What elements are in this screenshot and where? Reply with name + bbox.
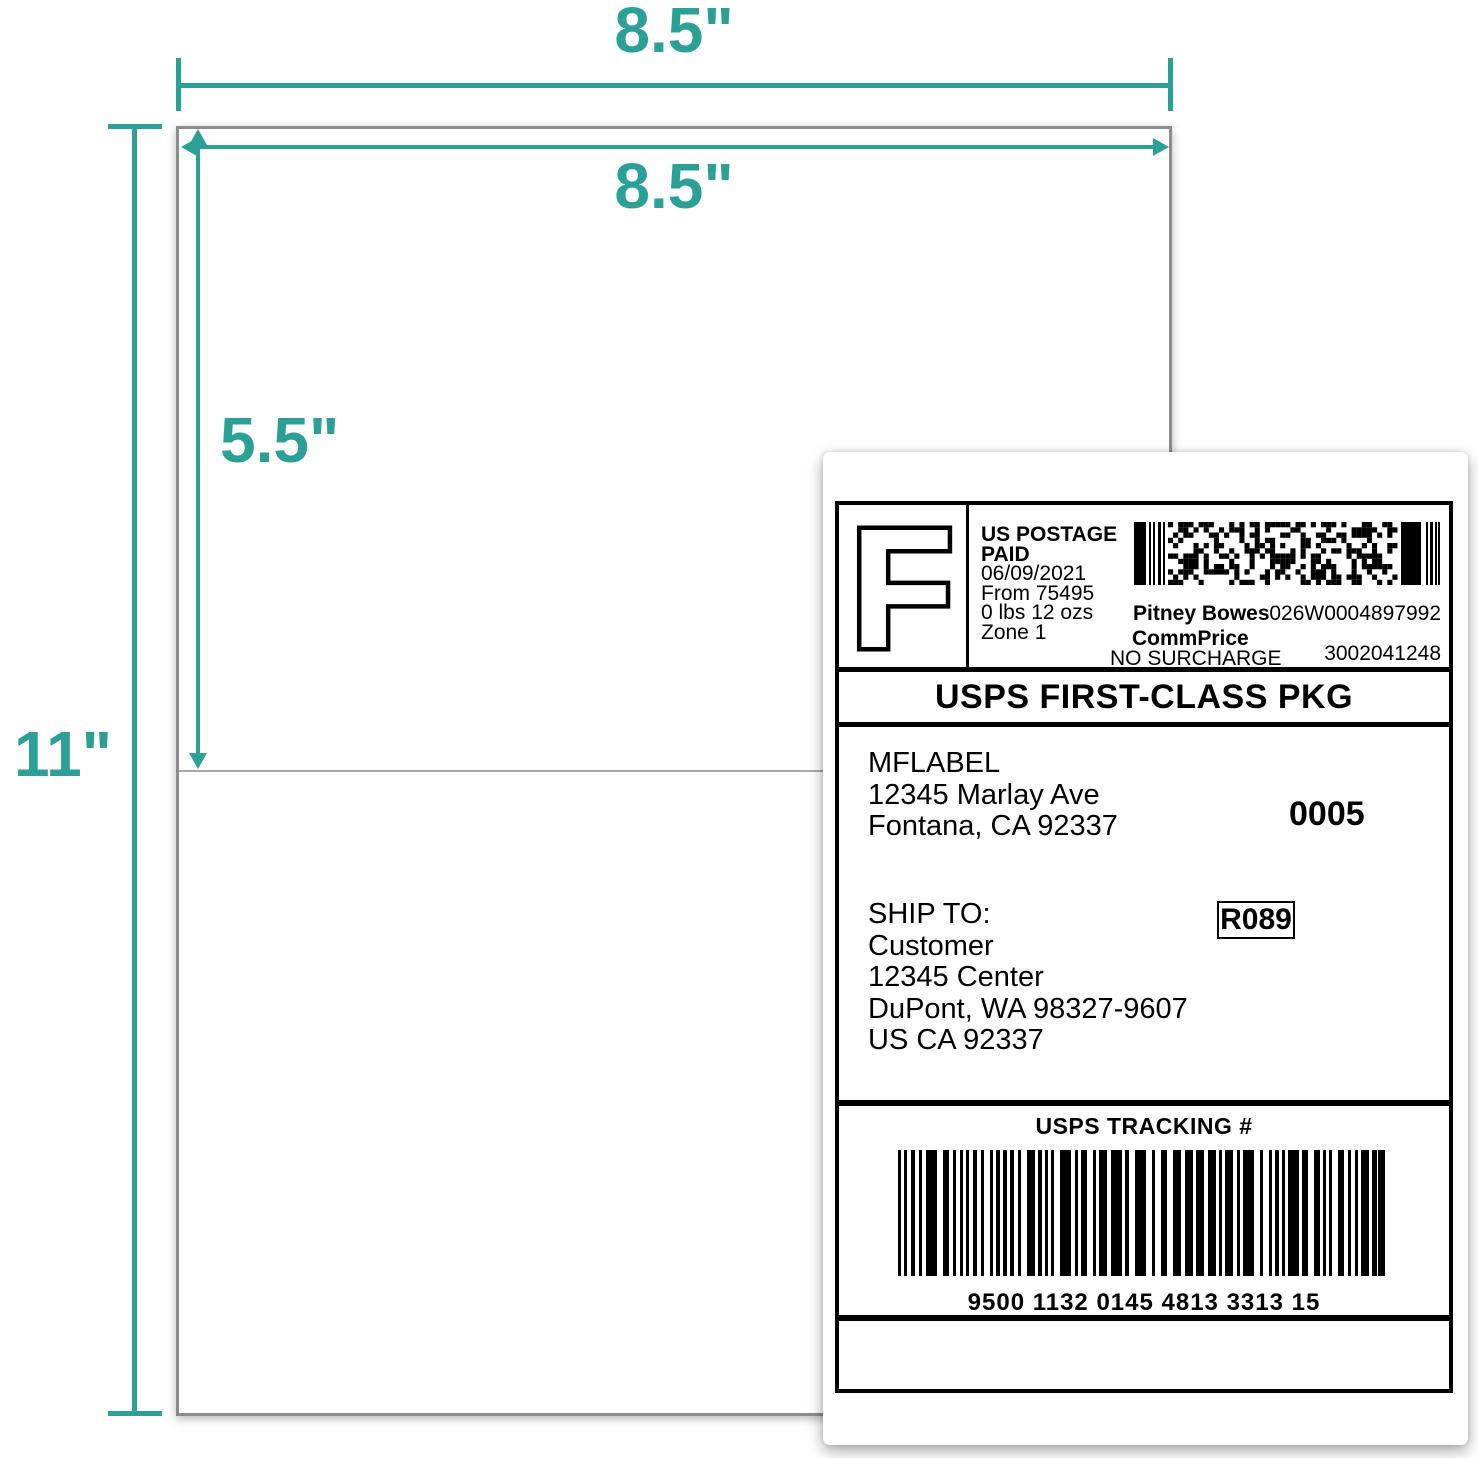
dimension-full-height-line xyxy=(132,126,137,1416)
postage-line: 06/09/2021 xyxy=(981,564,1117,584)
dimension-full-height-label: 11" xyxy=(0,722,112,786)
dimension-inner-width-line xyxy=(195,145,1157,149)
from-name: MFLABEL xyxy=(868,748,1118,780)
to-city: DuPont, WA 98327-9607 xyxy=(868,994,1188,1026)
section-divider xyxy=(839,1100,1449,1106)
route-code: R089 xyxy=(1220,903,1292,937)
to-name: Customer xyxy=(868,931,1188,963)
tracking-number: 9500 1132 0145 4813 3313 15 xyxy=(839,1289,1449,1317)
dimension-inner-width-label: 8.5" xyxy=(176,154,1172,218)
dimension-top-width-label: 8.5" xyxy=(176,0,1172,62)
section-divider xyxy=(839,1315,1449,1321)
dimension-top-line xyxy=(176,83,1173,88)
dimension-half-height-line xyxy=(196,143,200,755)
from-city: Fontana, CA 92337 xyxy=(868,811,1118,843)
shipping-label-frame: F US POSTAGE PAID 06/09/2021 From 75495 … xyxy=(835,501,1453,1393)
postage-f-indicia-icon: F xyxy=(839,505,966,667)
to-country: US CA 92337 xyxy=(868,1025,1188,1057)
carrier-name: Pitney Bowes xyxy=(1133,602,1270,626)
indicia-2d-barcode xyxy=(1134,522,1440,585)
shipping-label-sample: F US POSTAGE PAID 06/09/2021 From 75495 … xyxy=(823,452,1468,1445)
postage-f-letter: F xyxy=(850,505,954,667)
meter-number: 026W0004897992 xyxy=(1269,602,1441,626)
postage-line: US POSTAGE xyxy=(981,525,1117,545)
service-class-banner: USPS FIRST-CLASS PKG xyxy=(839,672,1449,722)
serial-number: 3002041248 xyxy=(1324,642,1441,666)
indicia-divider xyxy=(966,505,969,667)
dimension-full-height-tick-bottom xyxy=(108,1411,162,1416)
arrowhead-down-icon xyxy=(189,753,207,769)
postage-details: US POSTAGE PAID 06/09/2021 From 75495 0 … xyxy=(981,525,1117,642)
product-diagram: 8.5" 8.5" 5.5" 11" F US POSTAGE PAID 06/… xyxy=(0,0,1478,1458)
dimension-top-tick-right xyxy=(1168,58,1173,111)
section-divider xyxy=(839,722,1449,727)
from-street: 12345 Marlay Ave xyxy=(868,780,1118,812)
postage-line: 0 lbs 12 ozs xyxy=(981,603,1117,623)
batch-number: 0005 xyxy=(1289,795,1365,834)
dimension-top-tick-left xyxy=(176,58,181,111)
tracking-header: USPS TRACKING # xyxy=(839,1113,1449,1140)
tracking-1d-barcode xyxy=(898,1150,1385,1276)
arrowhead-up-icon xyxy=(189,129,207,145)
ship-to-address: SHIP TO: Customer 12345 Center DuPont, W… xyxy=(868,899,1188,1057)
postage-line: Zone 1 xyxy=(981,623,1117,643)
ship-to-label: SHIP TO: xyxy=(868,899,1188,931)
dimension-half-height-label: 5.5" xyxy=(220,408,339,472)
route-code-box: R089 xyxy=(1217,901,1295,939)
dimension-full-height-tick-top xyxy=(108,124,162,129)
from-address: MFLABEL 12345 Marlay Ave Fontana, CA 923… xyxy=(868,748,1118,843)
to-street: 12345 Center xyxy=(868,962,1188,994)
